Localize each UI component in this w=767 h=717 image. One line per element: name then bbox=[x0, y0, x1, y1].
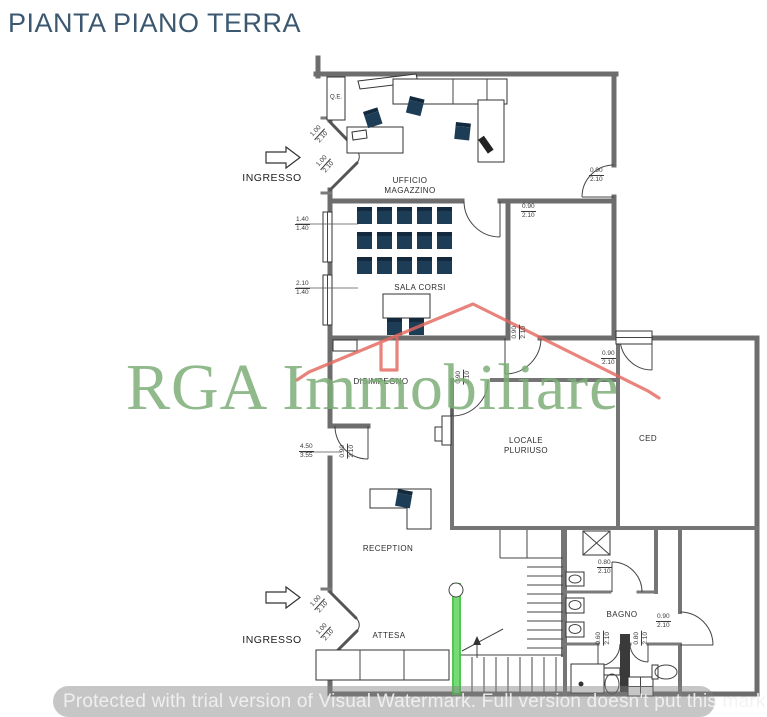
watermark-notice-bar: Protected with trial version of Visual W… bbox=[53, 686, 715, 717]
dimension-label: 0.802.10 bbox=[633, 631, 650, 646]
dimension-label: 0.902.10 bbox=[656, 613, 671, 630]
room-label-ced: CED bbox=[639, 434, 657, 444]
dimension-label: 0.902.10 bbox=[589, 167, 604, 184]
room-label-locale-pluriuso: LOCALE PLURIUSO bbox=[497, 436, 555, 456]
staircase bbox=[449, 530, 563, 695]
dimension-label: 1.401.40 bbox=[295, 216, 310, 233]
dimension-label: 0.602.10 bbox=[595, 631, 612, 646]
dimension-label: 0.802.10 bbox=[597, 559, 612, 576]
room-label-electrical-panel: Q.E. bbox=[330, 94, 342, 102]
brand-watermark: RGA Immobiliare bbox=[126, 350, 619, 426]
dimension-label: 0.902.10 bbox=[339, 444, 356, 459]
page-title: PIANTA PIANO TERRA bbox=[8, 8, 301, 39]
office-furniture bbox=[327, 74, 507, 162]
room-label-ufficio-magazzino: UFFICIO MAGAZZINO bbox=[381, 176, 439, 196]
entrance-label-top: INGRESSO bbox=[242, 172, 301, 184]
dimension-label: 2.101.40 bbox=[295, 280, 310, 297]
dimension-label: 4.503.55 bbox=[299, 443, 314, 460]
highlighted-wall bbox=[452, 583, 461, 695]
watermark-notice-text: Protected with trial version of Visual W… bbox=[63, 686, 708, 717]
floor-plan-page: PIANTA PIANO TERRA INGRESSO INGRESSO UFF… bbox=[0, 0, 767, 717]
classroom-chairs bbox=[357, 207, 452, 335]
room-label-sala-corsi: SALA CORSI bbox=[394, 283, 446, 293]
dimension-label: 0.902.10 bbox=[511, 325, 528, 340]
room-label-reception: RECEPTION bbox=[363, 544, 413, 554]
dimension-label: 0.902.10 bbox=[521, 203, 536, 220]
room-label-attesa: ATTESA bbox=[373, 631, 406, 641]
room-label-bagno: BAGNO bbox=[607, 610, 638, 620]
entrance-label-bottom: INGRESSO bbox=[242, 634, 301, 646]
